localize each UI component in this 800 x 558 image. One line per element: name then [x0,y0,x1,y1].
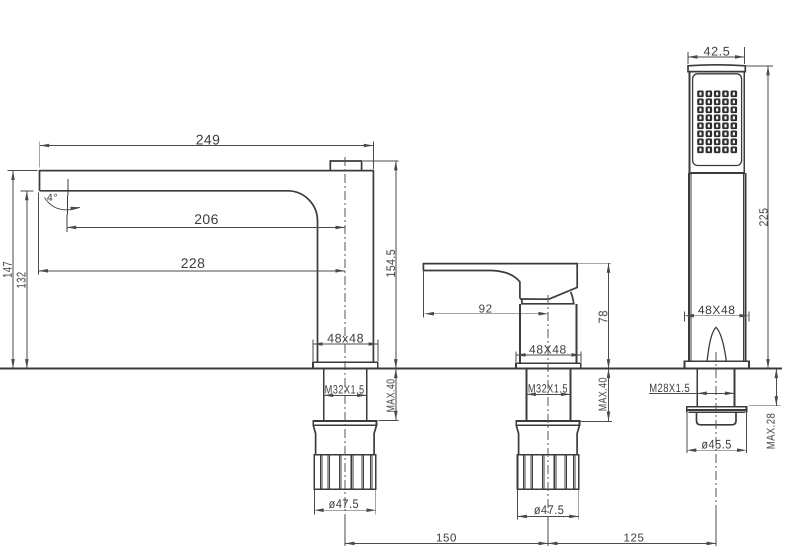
svg-text:MAX.40: MAX.40 [598,377,610,411]
svg-text:ø47.5: ø47.5 [534,503,565,517]
svg-text:225: 225 [757,208,771,227]
svg-text:48X48: 48X48 [698,303,736,317]
svg-text:228: 228 [181,255,206,271]
svg-text:ø45.5: ø45.5 [701,437,732,451]
svg-text:249: 249 [196,131,221,147]
svg-text:MAX.28: MAX.28 [766,413,778,450]
svg-text:206: 206 [194,211,219,227]
svg-text:125: 125 [624,533,645,545]
svg-text:150: 150 [436,532,457,544]
svg-text:132: 132 [14,271,28,288]
svg-text:147: 147 [1,261,15,278]
svg-text:4°: 4° [47,192,58,204]
svg-text:48x48: 48x48 [327,332,364,346]
svg-text:ø47.5: ø47.5 [329,497,360,511]
